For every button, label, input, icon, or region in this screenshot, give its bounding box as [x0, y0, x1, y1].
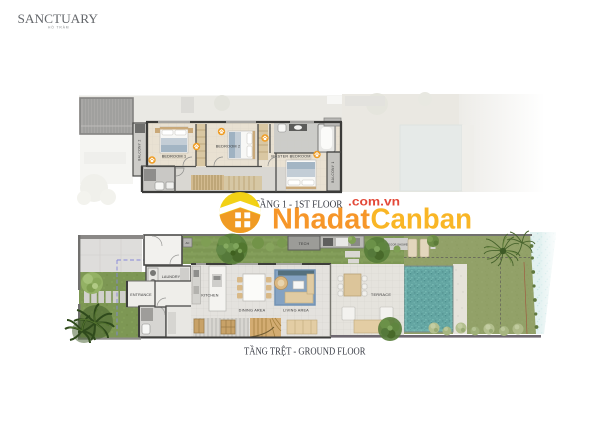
svg-text:SANCTUARY: SANCTUARY	[18, 12, 99, 26]
svg-text:TECH: TECH	[299, 242, 310, 246]
svg-text:DINING AREA: DINING AREA	[239, 309, 266, 313]
svg-text:LAUNDRY: LAUNDRY	[162, 275, 181, 279]
svg-text:BALCONY 1: BALCONY 1	[331, 161, 335, 182]
svg-text:KITCHEN: KITCHEN	[201, 294, 218, 298]
svg-text:LIVING AREA: LIVING AREA	[283, 309, 309, 313]
svg-text:BEDROOM 1: BEDROOM 1	[162, 154, 187, 158]
svg-text:.com.vn: .com.vn	[348, 195, 400, 209]
svg-text:TẦNG TRỆT - GROUND FLOOR: TẦNG TRỆT - GROUND FLOOR	[244, 345, 366, 358]
svg-text:TERRACE: TERRACE	[371, 292, 391, 297]
svg-text:BALCONY 2: BALCONY 2	[138, 139, 142, 160]
svg-text:HỒ TRÀM: HỒ TRÀM	[48, 24, 69, 29]
svg-text:BEDROOM 2: BEDROOM 2	[216, 145, 241, 149]
svg-text:ENTRANCE: ENTRANCE	[130, 293, 152, 297]
svg-text:AC: AC	[186, 241, 190, 245]
svg-text:MASTER BEDROOM: MASTER BEDROOM	[271, 155, 310, 159]
